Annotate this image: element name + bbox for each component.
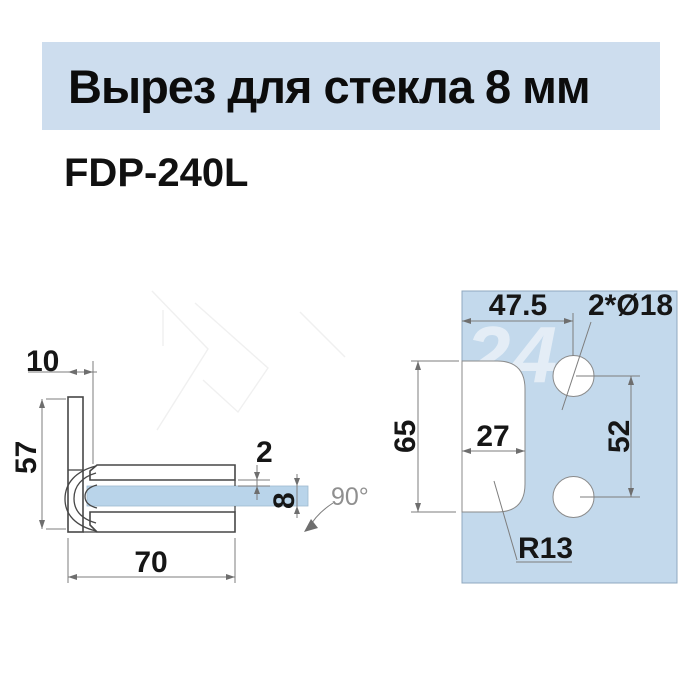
page: Вырез для стекла 8 мм FDP-240L xyxy=(0,0,700,700)
dim-height: 57 xyxy=(10,399,66,529)
dim-height-label: 57 xyxy=(10,441,43,474)
dim-holes-label: 2*Ø18 xyxy=(588,289,673,322)
dim-edge-to-hole-label: 47.5 xyxy=(489,289,547,322)
clamp-top-bar xyxy=(90,465,235,480)
dim-depth: 70 xyxy=(68,538,235,583)
background-watermark-strokes xyxy=(152,291,345,430)
dim-cutout-depth-label: 27 xyxy=(476,420,509,453)
dim-gasket-gap-label: 2 xyxy=(256,436,273,469)
dim-cutout-height: 65 xyxy=(389,361,459,512)
rotation-annotation: 90° xyxy=(304,483,369,532)
dim-cutout-height-label: 65 xyxy=(389,420,422,453)
technical-drawing: 10 57 2 xyxy=(0,0,700,700)
cutout-view: 24 47.5 2*Ø18 xyxy=(389,289,677,583)
dim-glass-thickness: 8 xyxy=(268,474,301,518)
dim-depth-label: 70 xyxy=(134,546,167,579)
wall-plate xyxy=(68,397,83,532)
dim-hole-spacing-label: 52 xyxy=(603,420,636,453)
clamp-bottom-bar xyxy=(90,512,235,532)
dim-glass-thickness-label: 8 xyxy=(268,492,301,509)
dim-corner-radius-label: R13 xyxy=(518,532,573,565)
dim-plate-width-label: 10 xyxy=(26,345,59,378)
rotation-angle-label: 90° xyxy=(331,483,369,511)
side-view: 10 57 2 xyxy=(10,345,369,583)
